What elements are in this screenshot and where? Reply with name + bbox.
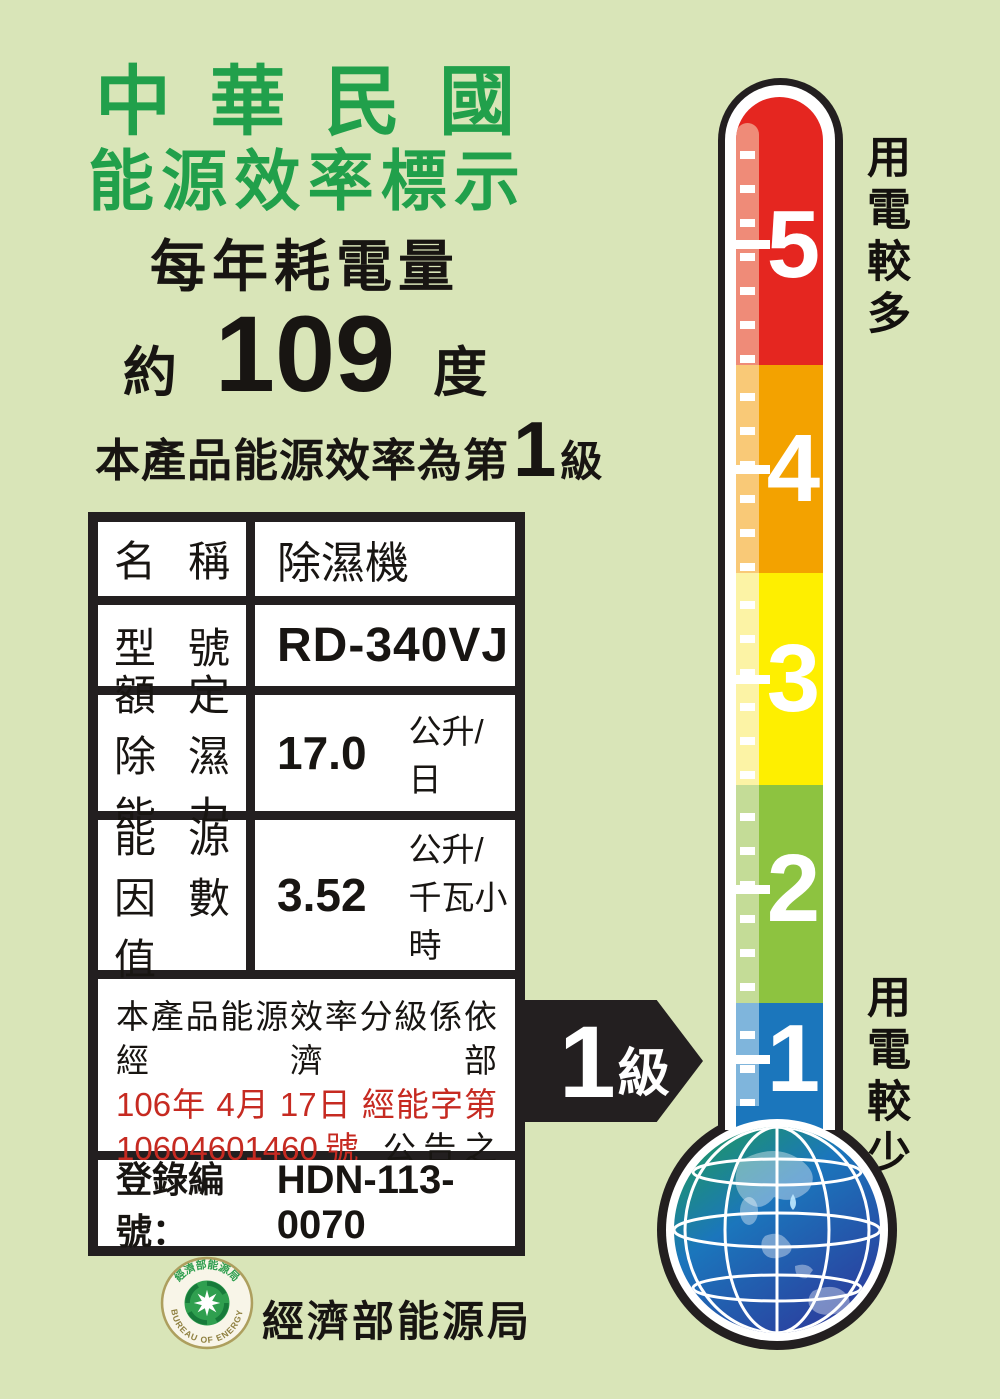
level-2-section: 2 [736, 785, 823, 1003]
row-value-capacity: 17.0 公升/日 [255, 695, 515, 811]
thermometer-scale: 5 4 3 2 1 [736, 97, 823, 1140]
grade-suffix: 級 [560, 428, 602, 489]
globe-icon [645, 1106, 909, 1370]
level-4-number: 4 [764, 421, 823, 517]
grade-arrow: 1 級 [525, 1000, 703, 1122]
notice-line2: 106年 4月 17日 經能字第 [116, 1083, 497, 1127]
row-value-energy-factor: 3.52 公升/千瓦小時 [255, 820, 515, 970]
row-value-model: RD-340VJ [255, 605, 515, 686]
level-1-number: 1 [764, 1011, 823, 1107]
table-row: 登錄編號： HDN-113-0070 [98, 1160, 515, 1246]
energy-label: 中華民國 能源效率標示 每年耗電量 約 109 度 本產品能源效率為第 1 級 … [0, 0, 1000, 1399]
registration-row: 登錄編號： HDN-113-0070 [98, 1160, 515, 1246]
level-3-number: 3 [764, 631, 823, 727]
seal-star-icon [194, 1290, 221, 1317]
level-5-section: 5 [736, 97, 823, 365]
row-label-name: 名稱 [98, 522, 246, 596]
row-value-name: 除濕機 [255, 522, 515, 596]
approx-prefix: 約 [123, 328, 177, 407]
page-title-line2: 能源效率標示 [88, 128, 520, 224]
arrow-grade-number: 1 [559, 1016, 616, 1110]
table-row: 本產品能源效率分級係依經濟部 106年 4月 17日 經能字第 10604601… [98, 979, 515, 1151]
level-3-section: 3 [736, 573, 823, 785]
label-uses-more-power: 用電較多 [852, 134, 916, 342]
level-2-stripe [736, 785, 759, 1003]
spec-table: 名稱 除濕機 型號 RD-340VJ 額定 除濕能力 17.0 公升/日 [88, 512, 525, 1256]
annual-consumption-heading: 每年耗電量 [95, 222, 515, 303]
level-4-section: 4 [736, 365, 823, 573]
registration-number: HDN-113-0070 [277, 1158, 515, 1248]
level-5-number: 5 [764, 197, 823, 293]
registration-label: 登錄編號： [116, 1151, 277, 1255]
bureau-of-energy-seal: 經濟部能源局 BUREAU OF ENERGY [160, 1256, 254, 1350]
table-row: 名稱 除濕機 [98, 522, 515, 596]
notice-text: 本產品能源效率分級係依經濟部 106年 4月 17日 經能字第 10604601… [98, 979, 515, 1151]
bureau-name: 經濟部能源局 [262, 1288, 532, 1349]
table-row: 能源 因數值 3.52 公升/千瓦小時 [98, 820, 515, 970]
annual-consumption-line: 約 109 度 [95, 300, 515, 408]
annual-consumption-value: 109 [215, 300, 395, 408]
row-label-energy-factor: 能源 因數值 [98, 820, 246, 970]
annual-consumption-unit: 度 [433, 328, 487, 407]
grade-number: 1 [513, 414, 556, 484]
tick-marks [740, 787, 755, 1003]
grade-sentence-prefix: 本產品能源效率為第 [95, 424, 509, 489]
table-row: 額定 除濕能力 17.0 公升/日 [98, 695, 515, 811]
thermometer: 5 4 3 2 1 [718, 78, 843, 1140]
row-label-capacity: 額定 除濕能力 [98, 695, 246, 811]
level-2-number: 2 [764, 841, 823, 937]
arrow-grade-suffix: 級 [618, 1031, 670, 1106]
grade-sentence: 本產品能源效率為第 1 級 [95, 414, 602, 489]
notice-line1: 本產品能源效率分級係依經濟部 [116, 995, 497, 1083]
